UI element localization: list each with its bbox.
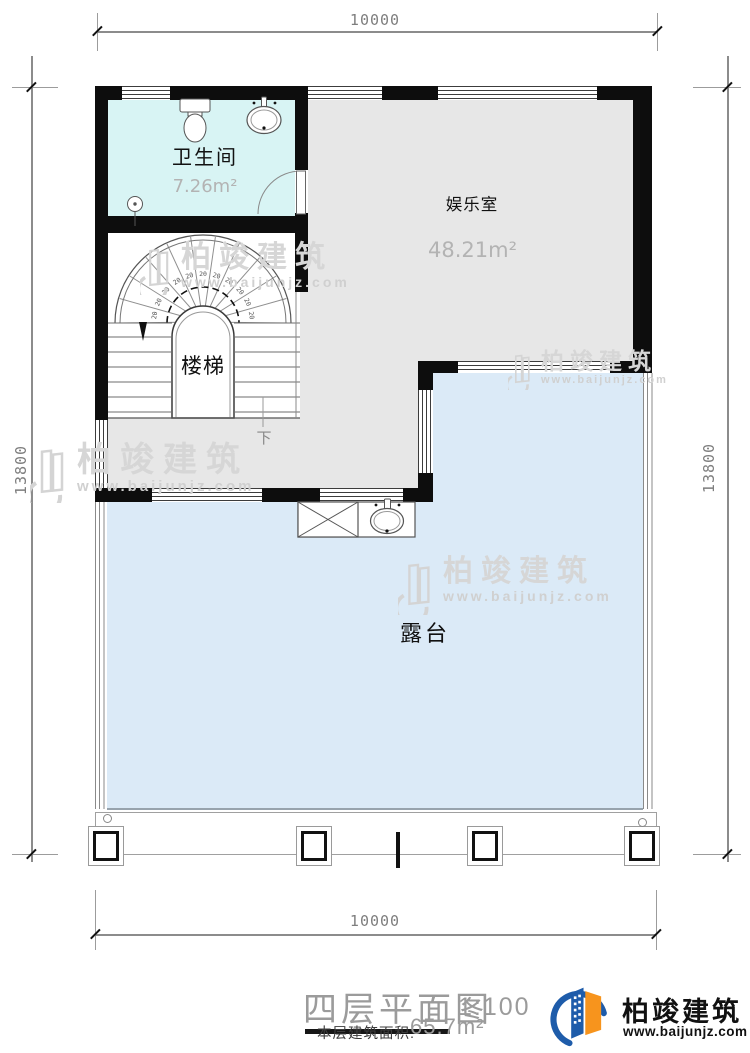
brand-website: www.baijunjz.com [623, 1024, 748, 1039]
bathroom-label: 卫生间 [145, 141, 265, 170]
bathroom-area: 7.26m² [145, 176, 265, 197]
toilet-icon [180, 99, 210, 142]
svg-text:20: 20 [160, 285, 171, 296]
floor-drain-icon [128, 197, 143, 227]
svg-text:20: 20 [150, 311, 159, 320]
svg-text:20: 20 [153, 297, 164, 308]
entertainment-area: 48.21m² [405, 238, 540, 262]
bathroom-sink-icon [247, 97, 281, 134]
brand-logo-icon [543, 980, 617, 1048]
door-leaf [297, 171, 306, 214]
svg-text:20: 20 [234, 285, 245, 296]
floor-area-label: 本层建筑面积: [317, 1022, 415, 1043]
stairs-label: 楼梯 [153, 350, 253, 380]
svg-text:20: 20 [224, 276, 235, 287]
svg-text:20: 20 [212, 271, 222, 281]
stair-down-arrow [139, 322, 147, 341]
terrace-label: 露台 [365, 616, 485, 648]
plan-linework: 20 20 20 20 20 20 20 20 20 20 20 [0, 0, 750, 1053]
svg-text:20: 20 [247, 311, 256, 320]
floor-area-value: 65.7m² [410, 1014, 484, 1040]
stairs-down-label: 下 [250, 427, 278, 448]
svg-text:20: 20 [199, 270, 207, 278]
entertainment-label: 娱乐室 [412, 191, 532, 215]
terrace-sink-icon [371, 499, 404, 534]
svg-text:20: 20 [242, 297, 253, 308]
floor-plan-canvas: 10000 10000 13800 13800 20 20 [0, 0, 750, 1053]
svg-text:20: 20 [172, 276, 183, 287]
svg-text:20: 20 [185, 271, 195, 281]
